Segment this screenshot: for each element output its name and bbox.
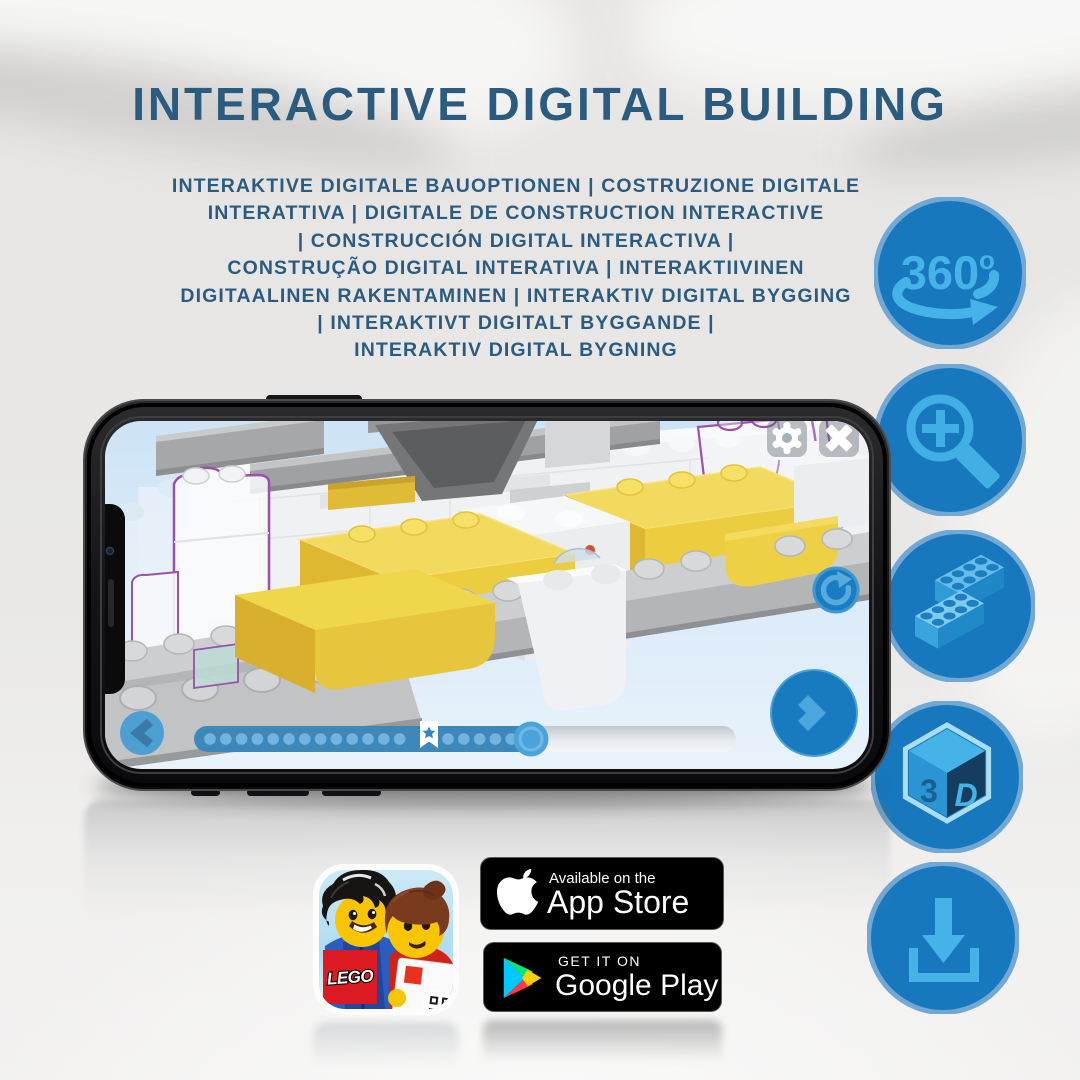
svg-text:360: 360 (901, 246, 979, 299)
svg-text:D: D (954, 777, 977, 813)
svg-text:3: 3 (920, 773, 938, 809)
svg-text:LEGO: LEGO (326, 966, 374, 988)
